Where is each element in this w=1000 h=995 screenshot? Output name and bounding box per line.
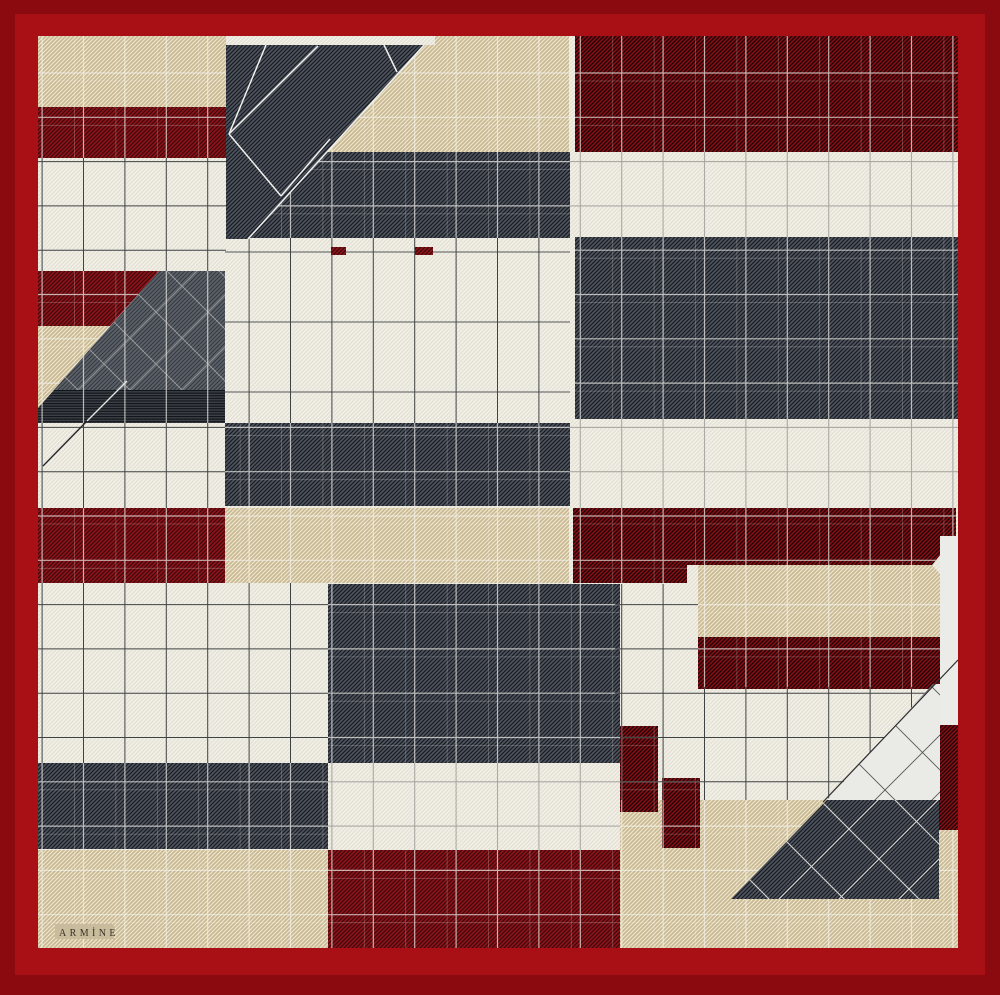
svg-text:ARMİNE: ARMİNE (59, 927, 119, 939)
